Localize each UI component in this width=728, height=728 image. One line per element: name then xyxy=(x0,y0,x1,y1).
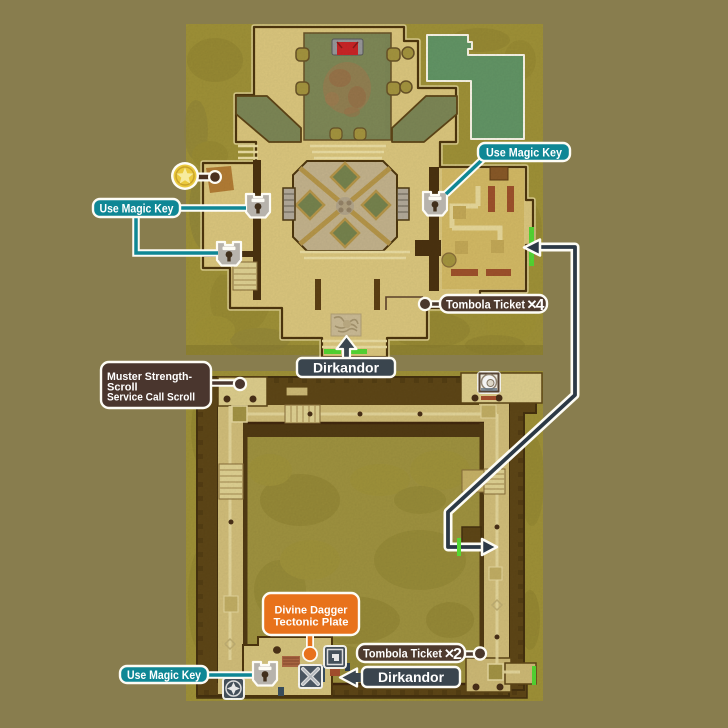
svg-text:Use Magic Key: Use Magic Key xyxy=(127,668,201,682)
svg-text:Use Magic Key: Use Magic Key xyxy=(100,202,174,216)
svg-text:2: 2 xyxy=(453,646,462,663)
svg-text:4: 4 xyxy=(536,297,545,314)
svg-text:Divine Dagger: Divine Dagger xyxy=(275,605,349,617)
svg-text:Dirkandor: Dirkandor xyxy=(313,360,380,376)
svg-text:Tectonic Plate: Tectonic Plate xyxy=(274,617,349,629)
svg-text:Tombola Ticket: Tombola Ticket xyxy=(446,300,525,312)
svg-text:Service Call Scroll: Service Call Scroll xyxy=(107,392,195,404)
svg-text:Tombola Ticket: Tombola Ticket xyxy=(363,649,442,661)
svg-text:Use Magic Key: Use Magic Key xyxy=(486,146,562,160)
svg-text:Dirkandor: Dirkandor xyxy=(378,669,445,685)
